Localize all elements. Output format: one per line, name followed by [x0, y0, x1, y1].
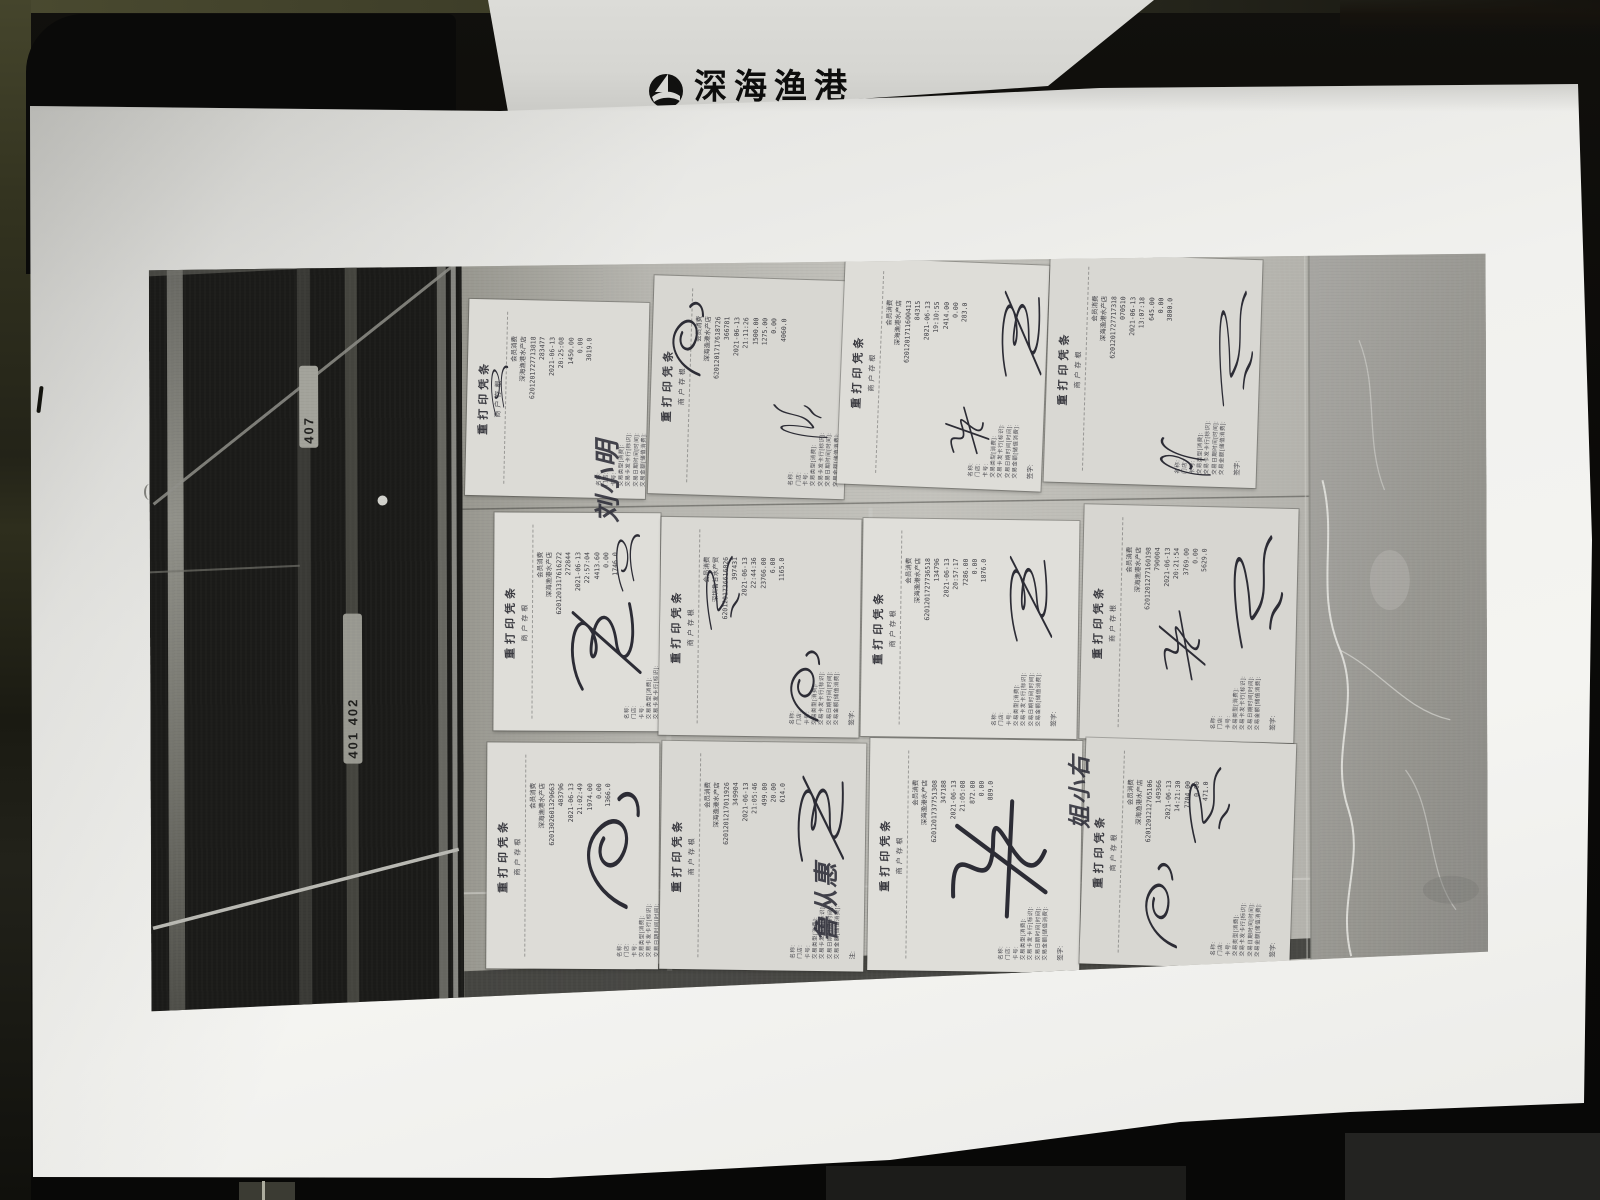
letterhead-logo-text: 深海渔港: [694, 69, 854, 104]
receipt-stub-label: 商户存根: [519, 525, 533, 719]
receipt-balance: 1876.0: [978, 559, 990, 726]
door-edge-strip: [167, 254, 186, 1014]
object-below-sheet-highlight: [262, 1181, 265, 1200]
door-label-401-402: 401 402: [345, 698, 360, 759]
sail-logo-icon: [646, 70, 686, 110]
handwritten-name: 姐小右: [1060, 751, 1090, 829]
receipt-header: 重打印凭条: [501, 524, 518, 718]
signature-scribble: [758, 399, 837, 445]
receipt-sign-line: 签字:: [845, 531, 858, 725]
receipt-header: 重打印凭条: [667, 529, 686, 723]
sheet-below-edge: [826, 1166, 1186, 1200]
receipt-stub-label: 商户存根: [512, 755, 526, 957]
photocopied-photo: 407 401 402: [149, 250, 1489, 1015]
receipt-header: 重打印凭条: [494, 754, 511, 956]
receipt-header: 重打印凭条: [869, 530, 888, 724]
marble-wall: [1305, 250, 1489, 1011]
handwritten-name: 刘小明: [587, 431, 623, 523]
receipt-stub-label: 商户存根: [685, 753, 701, 957]
door-label-407: 407: [301, 416, 316, 444]
scanner-background-topright: [1340, 0, 1600, 34]
receipt-stub-label: 商户存根: [1106, 517, 1124, 727]
receipt-values: 会员消费 深海渔港水产店 6201201727713818 283477 202…: [507, 312, 596, 486]
receipt-values: 会员消费 深海渔港水产店 6201201727736518 134796 202…: [903, 531, 990, 726]
object-below-sheet: [239, 1182, 295, 1200]
receipt-stub-label: 商户存根: [887, 530, 903, 724]
door-panel: 407 401 402: [149, 253, 465, 1014]
handwritten-name: 鲁从惠: [807, 858, 841, 942]
signature-scribble: [548, 760, 673, 927]
receipt-stub-label: 商户存根: [893, 750, 909, 958]
door-label-401-402-plate: 401 402: [343, 614, 363, 764]
receipt-sign-line: 签字:: [1266, 755, 1282, 957]
receipt-header: 重打印凭条: [667, 753, 686, 957]
scanner-bed: 深海渔港: [0, 0, 1600, 1200]
receipt-header: 重打印凭条: [1088, 516, 1109, 726]
door-knob-highlight: [378, 496, 388, 506]
sheet-below-edge: [1345, 1133, 1600, 1200]
receipt-values: 会员消费 深海渔港水产店 6201201217011926 349904 202…: [701, 753, 789, 958]
receipt-header: 重打印凭条: [875, 750, 894, 958]
door-label-407-plate: 407: [299, 366, 318, 448]
